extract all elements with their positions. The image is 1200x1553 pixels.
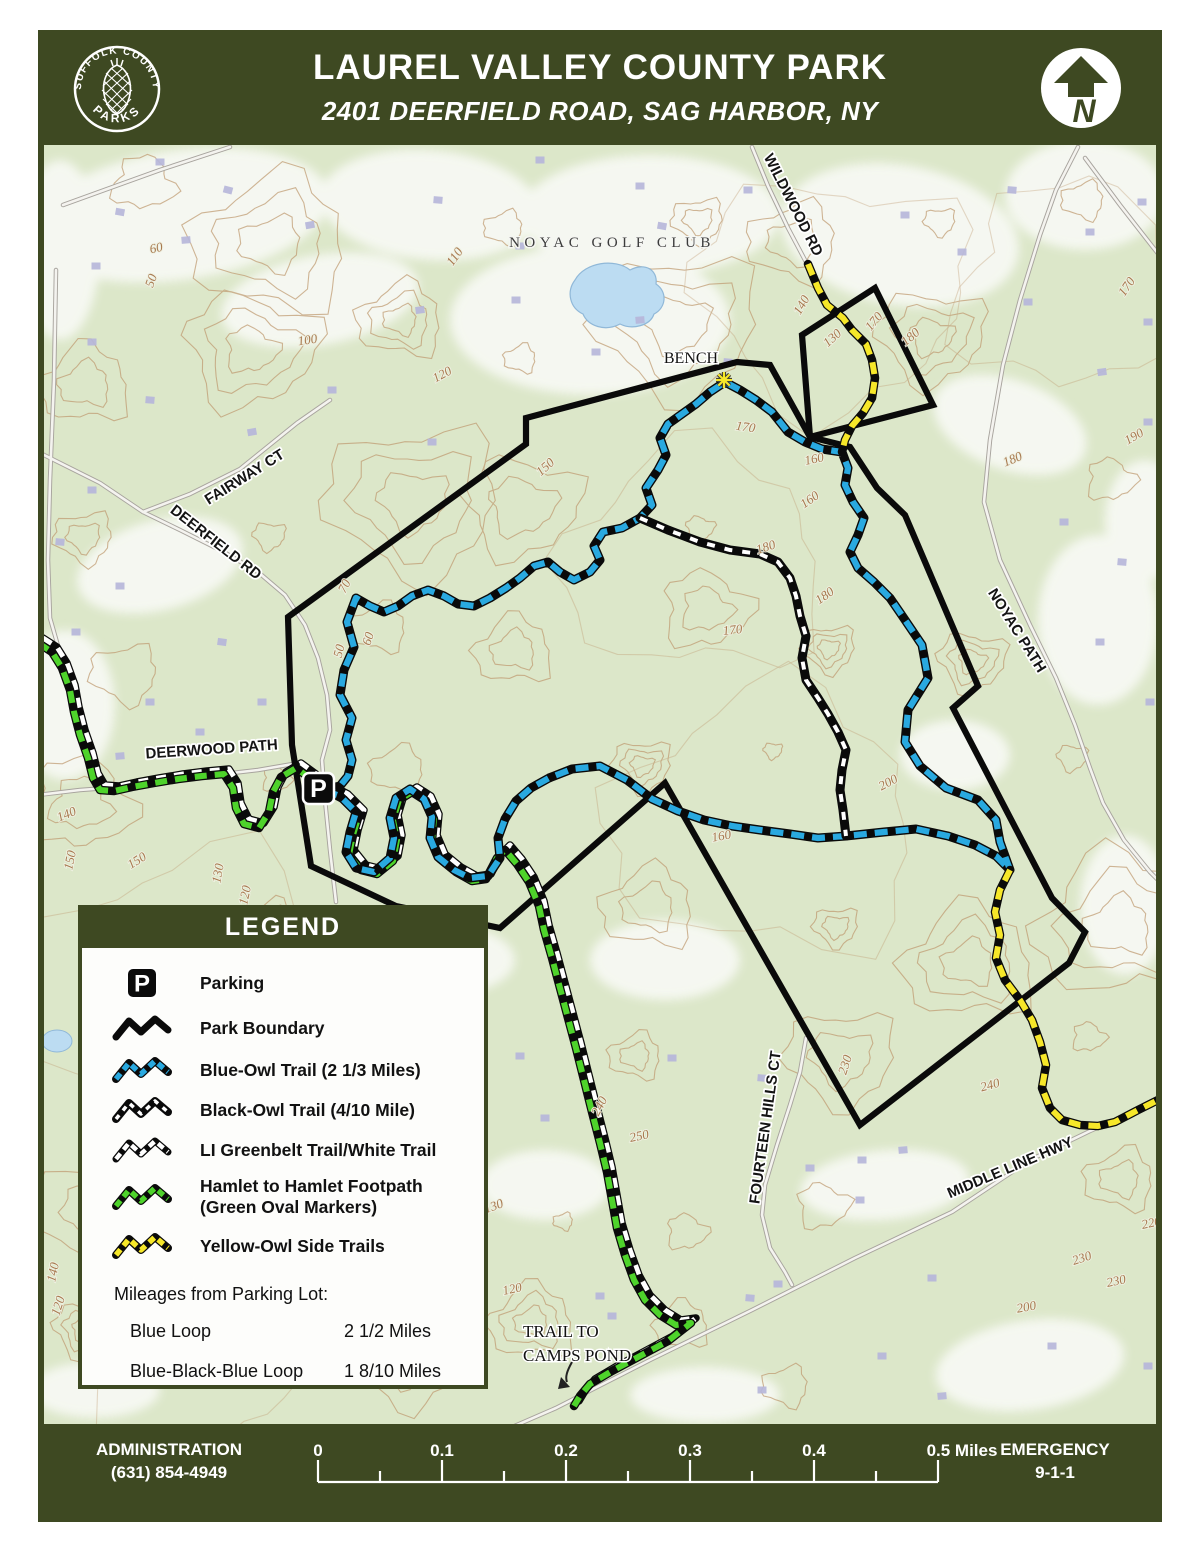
place-label: CAMPS POND [523, 1346, 631, 1365]
parking-marker: P [303, 773, 334, 804]
scale-tick-label: 0.1 [430, 1441, 454, 1460]
svg-text:P: P [310, 775, 327, 803]
legend-item-green: Hamlet to Hamlet Footpath(Green Oval Mar… [82, 1170, 484, 1224]
administration-block: ADMINISTRATION (631) 854-4949 [44, 1438, 294, 1484]
legend-item-label: Park Boundary [200, 1018, 324, 1039]
legend-item-label: LI Greenbelt Trail/White Trail [200, 1140, 436, 1161]
legend-swatch-parking-icon: P [111, 967, 173, 999]
page-subtitle: 2401 DEERFIELD ROAD, SAG HARBOR, NY [160, 96, 1040, 127]
mileage-label: Blue Loop [130, 1321, 211, 1342]
scale-bar: 00.10.20.30.40.5 Miles [296, 1438, 1026, 1494]
page-title: LAUREL VALLEY COUNTY PARK [160, 48, 1040, 88]
administration-label: ADMINISTRATION [44, 1438, 294, 1461]
contour-label: 170 [735, 418, 757, 436]
legend-title: LEGEND [82, 909, 484, 948]
north-letter: N [1072, 93, 1096, 129]
legend-item-parking: PParking [82, 960, 484, 1006]
mileage-row: Blue-Black-Blue Loop1 8/10 Miles [82, 1361, 484, 1385]
legend-swatch-yellow-icon [111, 1230, 173, 1262]
bench-marker-icon [716, 372, 732, 388]
mileage-value: 1 8/10 Miles [344, 1361, 441, 1382]
legend-item-yellow: Yellow-Owl Side Trails [82, 1224, 484, 1268]
legend-swatch-black-icon [111, 1094, 173, 1126]
administration-phone: (631) 854-4949 [44, 1461, 294, 1484]
legend-item-label: Blue-Owl Trail (2 1/3 Miles) [200, 1060, 421, 1081]
legend-item-boundary: Park Boundary [82, 1006, 484, 1050]
legend-mileage-rows: Blue Loop2 1/2 MilesBlue-Black-Blue Loop… [82, 1321, 484, 1385]
place-label: NOYAC GOLF CLUB [509, 235, 715, 251]
svg-text:P: P [134, 971, 150, 998]
legend-item-label: Parking [200, 973, 264, 994]
scale-tick-label: 0.3 [678, 1441, 702, 1460]
legend-item-label: Yellow-Owl Side Trails [200, 1236, 385, 1257]
legend-swatch-white-icon [111, 1134, 173, 1166]
scale-tick-label: 0.2 [554, 1441, 578, 1460]
park-map-poster: SUFFOLK COUNTY PARKS LAUREL VALLEY COUNT… [0, 0, 1200, 1553]
mileage-label: Blue-Black-Blue Loop [130, 1361, 303, 1382]
mileage-row: Blue Loop2 1/2 Miles [82, 1321, 484, 1345]
north-arrow-icon: N [1038, 45, 1124, 131]
emergency-block: EMERGENCY 9-1-1 [948, 1438, 1162, 1484]
suffolk-county-parks-logo: SUFFOLK COUNTY PARKS [70, 42, 164, 136]
emergency-value: 9-1-1 [948, 1461, 1162, 1484]
contour-label: 100 [297, 331, 319, 349]
scale-tick-label: 0.4 [802, 1441, 826, 1460]
legend-item-label: Black-Owl Trail (4/10 Mile) [200, 1100, 415, 1121]
contour-label: 170 [722, 621, 743, 638]
legend-panel: LEGEND PParkingPark BoundaryBlue-Owl Tra… [78, 905, 488, 1389]
legend-item-label: Hamlet to Hamlet Footpath(Green Oval Mar… [200, 1176, 423, 1218]
legend-swatch-green-icon [111, 1181, 173, 1213]
scale-tick-label: 0 [313, 1441, 322, 1460]
legend-swatch-blue-icon [111, 1054, 173, 1086]
legend-swatch-boundary-icon [111, 1012, 173, 1044]
legend-mileages-title: Mileages from Parking Lot: [114, 1284, 484, 1305]
legend-item-white: LI Greenbelt Trail/White Trail [82, 1130, 484, 1170]
legend-item-black: Black-Owl Trail (4/10 Mile) [82, 1090, 484, 1130]
place-label: TRAIL TO [523, 1322, 599, 1341]
mileage-value: 2 1/2 Miles [344, 1321, 431, 1342]
emergency-label: EMERGENCY [948, 1438, 1162, 1461]
pinecone-icon [102, 58, 132, 114]
place-label: BENCH [664, 350, 719, 367]
legend-rows: PParkingPark BoundaryBlue-Owl Trail (2 1… [82, 960, 484, 1268]
contour-label: 220 [1140, 1213, 1156, 1232]
legend-item-blue: Blue-Owl Trail (2 1/3 Miles) [82, 1050, 484, 1090]
